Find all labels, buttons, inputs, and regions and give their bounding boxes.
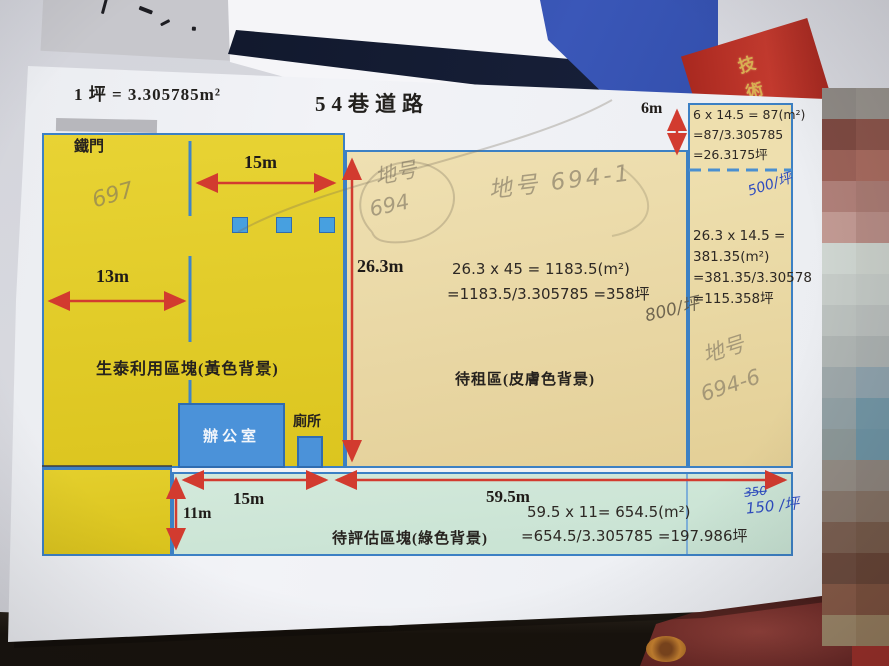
censored-pixel-block — [822, 243, 856, 274]
right-top-calc-line3: =26.3175坪 — [693, 145, 805, 165]
censored-pixel-block — [822, 367, 856, 398]
right-top-calc-line2: =87/3.305785 — [693, 125, 805, 145]
censored-pixel-block — [856, 398, 889, 429]
right-calc-line1: 26.3 x 14.5 = — [693, 226, 812, 247]
right-top-calc: 6 x 14.5 = 87(m²) =87/3.305785 =26.3175坪 — [693, 105, 805, 165]
censored-pixel-block — [856, 615, 889, 646]
handwritten-price-150: 350 150 /坪 — [743, 480, 800, 518]
censored-pixel-block — [822, 212, 856, 243]
middle-height-label: 26.3m — [357, 256, 404, 277]
censored-pixel-block — [856, 119, 889, 150]
left-width-label: 13m — [96, 266, 129, 287]
yellow-area-label: 生泰利用區塊(黃色背景) — [96, 355, 279, 379]
green-width-right-label: 59.5m — [486, 487, 530, 507]
green-area-label: 待評估區塊(綠色背景) — [332, 527, 488, 548]
toilet-label: 廁所 — [293, 411, 321, 431]
censored-mosaic-strip — [822, 88, 889, 646]
middle-calc-line2: =1183.5/3.305785 =358坪 — [447, 283, 650, 304]
right-top-calc-line1: 6 x 14.5 = 87(m²) — [693, 105, 805, 125]
censored-pixel-block — [856, 522, 889, 553]
censored-pixel-block — [822, 88, 856, 119]
censored-pixel-block — [822, 398, 856, 429]
ink-mark — [101, 0, 108, 14]
censored-pixel-block — [856, 274, 889, 305]
green-calc-line1: 59.5 x 11= 654.5(m²) — [527, 503, 691, 521]
censored-pixel-block — [822, 119, 856, 150]
censored-pixel-block — [856, 150, 889, 181]
censored-pixel-block — [822, 429, 856, 460]
censored-pixel-block — [822, 522, 856, 553]
censored-pixel-block — [856, 88, 889, 119]
censored-pixel-block — [822, 305, 856, 336]
top-width-label: 15m — [244, 152, 277, 173]
censored-pixel-block — [822, 150, 856, 181]
office-label: 辦公室 — [203, 425, 260, 446]
censored-pixel-block — [822, 491, 856, 522]
blue-square-marker — [276, 217, 292, 233]
photo-of-land-plan: 技術顧 1 坪 = 3.305785m² 54巷道路 鐵門 15m 13m 生泰… — [0, 0, 889, 666]
right-column-region — [688, 170, 793, 468]
iron-gate-label: 鐵門 — [74, 135, 104, 156]
right-calc-block: 26.3 x 14.5 = 381.35(m²) =381.35/3.30578… — [693, 226, 812, 310]
censored-pixel-block — [856, 460, 889, 491]
right-calc-line3: =381.35/3.30578 — [693, 268, 812, 289]
censored-pixel-block — [856, 367, 889, 398]
censored-pixel-block — [856, 305, 889, 336]
censored-pixel-block — [822, 336, 856, 367]
censored-pixel-block — [856, 553, 889, 584]
blue-square-marker — [232, 217, 248, 233]
ink-mark — [192, 27, 196, 31]
green-width-left-label: 15m — [233, 489, 264, 509]
unit-conversion-label: 1 坪 = 3.305785m² — [74, 80, 221, 105]
orange-object — [646, 636, 686, 662]
blue-square-marker — [319, 217, 335, 233]
censored-pixel-block — [856, 336, 889, 367]
censored-pixel-block — [856, 243, 889, 274]
censored-pixel-block — [822, 553, 856, 584]
road-title: 54巷道路 — [315, 88, 429, 118]
censored-pixel-block — [822, 584, 856, 615]
ink-mark — [139, 6, 154, 15]
middle-calc-line1: 26.3 x 45 = 1183.5(m²) — [452, 260, 630, 278]
censored-pixel-block — [856, 212, 889, 243]
right-calc-line4: =115.358坪 — [693, 289, 812, 310]
censored-pixel-block — [856, 491, 889, 522]
censored-pixel-block — [822, 274, 856, 305]
censored-pixel-block — [822, 181, 856, 212]
yellow-lower-block — [42, 468, 172, 556]
ink-mark — [160, 19, 170, 26]
censored-pixel-block — [856, 181, 889, 212]
green-height-label: 11m — [183, 505, 211, 523]
censored-pixel-block — [856, 429, 889, 460]
right-calc-line2: 381.35(m²) — [693, 247, 812, 268]
office-box: 辦公室 — [178, 403, 285, 468]
censored-pixel-block — [822, 615, 856, 646]
iron-gate-bar — [56, 118, 157, 133]
censored-pixel-block — [856, 584, 889, 615]
censored-pixel-block — [822, 460, 856, 491]
note-paper-scrap — [41, 0, 244, 61]
green-calc-line2: =654.5/3.305785 =197.986坪 — [521, 525, 748, 546]
toilet-box — [297, 436, 323, 468]
tan-area-label: 待租區(皮膚色背景) — [455, 368, 595, 389]
right-height-label: 6m — [641, 100, 662, 118]
